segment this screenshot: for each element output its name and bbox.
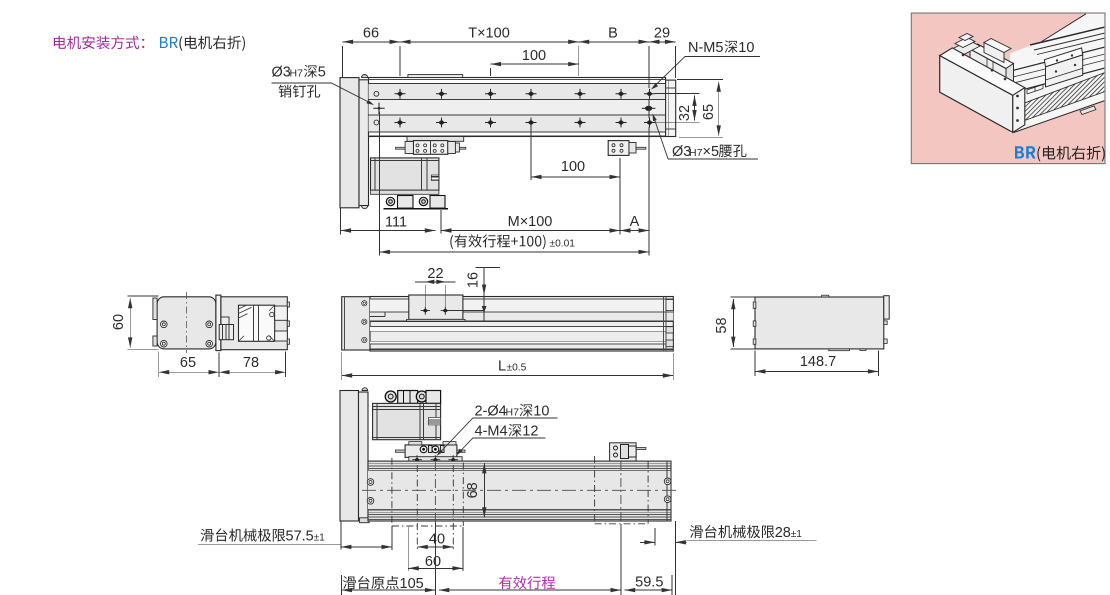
svg-text:L: L [498, 359, 506, 375]
svg-text:10: 10 [738, 40, 754, 56]
svg-text:78: 78 [243, 355, 259, 371]
svg-text:H7: H7 [506, 407, 520, 419]
svg-text:×5: ×5 [703, 144, 720, 160]
svg-text:H7: H7 [290, 68, 304, 80]
svg-text:±1: ±1 [791, 529, 803, 540]
svg-text:±1: ±1 [314, 533, 326, 544]
svg-text:100: 100 [561, 159, 585, 175]
svg-text:148.7: 148.7 [800, 354, 836, 370]
svg-text:66: 66 [363, 26, 379, 42]
svg-text:N-M5: N-M5 [688, 40, 723, 56]
svg-text:M×100: M×100 [508, 214, 553, 230]
svg-text:Ø3: Ø3 [272, 65, 291, 81]
svg-text:58: 58 [714, 317, 730, 333]
svg-text:5: 5 [318, 65, 326, 81]
svg-text:22: 22 [427, 266, 443, 282]
svg-text:H7: H7 [689, 147, 703, 159]
svg-text:28: 28 [775, 525, 791, 541]
svg-text:T×100: T×100 [468, 26, 510, 42]
svg-text:60: 60 [425, 554, 441, 570]
svg-text:B: B [608, 26, 618, 42]
svg-text:±0.01: ±0.01 [550, 239, 576, 250]
svg-text:32: 32 [677, 105, 693, 121]
svg-text:65: 65 [701, 104, 717, 120]
svg-text:68: 68 [465, 482, 481, 498]
svg-text:59.5: 59.5 [635, 575, 663, 591]
svg-text:57.5: 57.5 [286, 529, 314, 545]
svg-text:4-M4: 4-M4 [475, 424, 508, 440]
svg-text:60: 60 [111, 314, 127, 330]
svg-text:2-Ø4: 2-Ø4 [475, 404, 507, 420]
svg-text:105: 105 [400, 576, 424, 592]
svg-text:±0.5: ±0.5 [507, 363, 527, 374]
svg-text:A: A [630, 214, 640, 230]
svg-text:10: 10 [533, 404, 549, 420]
svg-text:65: 65 [180, 355, 196, 371]
svg-text:12: 12 [522, 424, 538, 440]
svg-text:111: 111 [385, 215, 407, 231]
svg-text:100: 100 [522, 48, 546, 64]
svg-text:29: 29 [654, 26, 670, 42]
svg-text:16: 16 [466, 272, 482, 288]
svg-text:40: 40 [429, 532, 445, 548]
